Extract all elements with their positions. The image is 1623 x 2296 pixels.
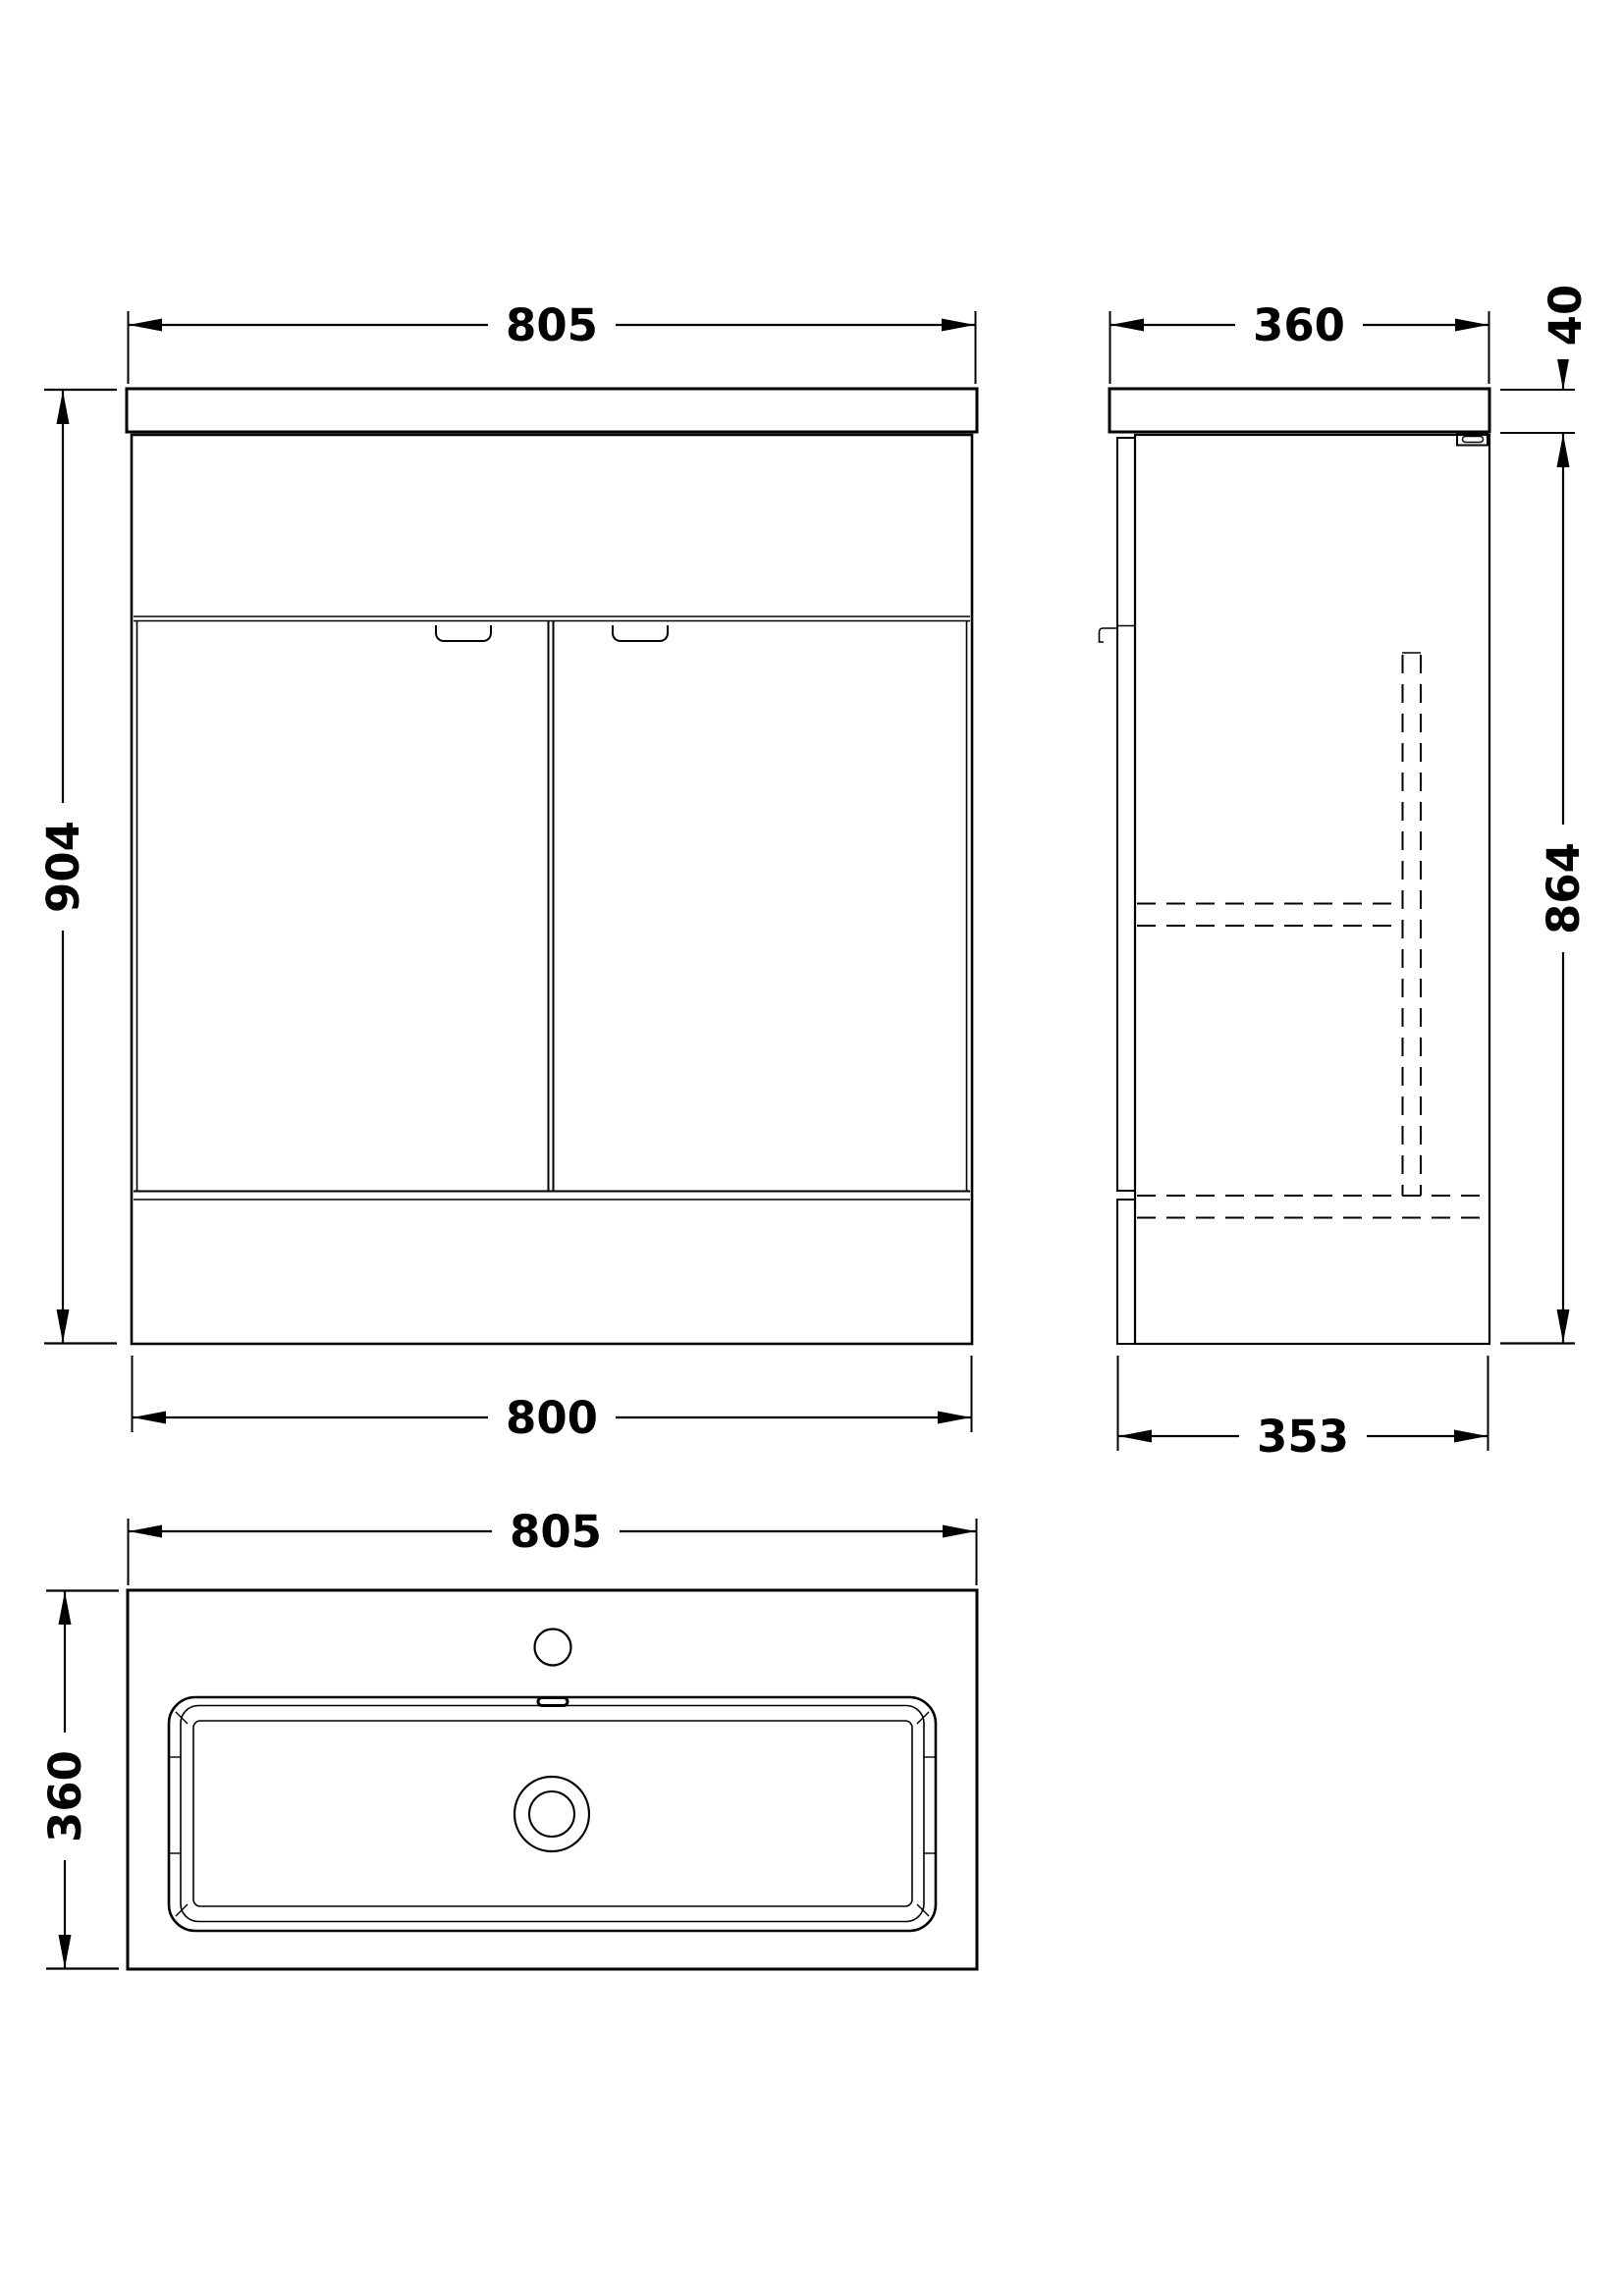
front-cabinet-carcass: [132, 435, 972, 1344]
plan-basin-rim-outer: [169, 1697, 936, 1931]
arrowhead-left: [129, 319, 162, 332]
technical-drawing-canvas: 805 904 800: [0, 0, 1623, 2296]
drawing-page: 805 904 800: [0, 0, 1623, 2296]
rotated-label-group: 360: [39, 1733, 91, 1860]
front-height-label: 904: [37, 821, 89, 913]
plan-basin-corner-tick-br: [917, 1904, 929, 1916]
arrowhead-right: [942, 319, 975, 332]
side-bottom-depth-label: 353: [1257, 1411, 1349, 1463]
side-dim-worktop-thickness: 40: [1500, 271, 1592, 433]
arrowhead-down: [59, 1935, 72, 1968]
front-top-width-label: 805: [506, 299, 598, 351]
arrowhead-down: [57, 1309, 70, 1343]
arrowhead-up: [1557, 434, 1570, 467]
side-door-profile: [1117, 438, 1135, 1191]
rotated-label-group: 40: [1540, 271, 1592, 359]
side-top-depth-label: 360: [1253, 299, 1345, 351]
plan-basin-corner-tick-tl: [176, 1712, 188, 1724]
arrowhead-right: [1455, 319, 1488, 332]
front-dim-top-width: 805: [129, 299, 976, 384]
front-view: 805 904 800: [37, 299, 977, 1444]
front-worktop: [127, 389, 977, 432]
side-cabinet-carcass: [1135, 435, 1489, 1344]
side-dim-bottom-depth: 353: [1118, 1356, 1488, 1463]
arrowhead-left: [129, 1525, 162, 1538]
front-left-door-handle: [436, 625, 491, 641]
arrowhead-right: [938, 1412, 971, 1424]
plan-overflow-slot: [538, 1698, 568, 1706]
plan-tap-hole: [535, 1629, 571, 1666]
arrowhead-up: [57, 391, 70, 424]
plan-dim-depth: 360: [39, 1591, 119, 1969]
front-dim-height: 904: [37, 390, 117, 1344]
side-plinth-profile: [1117, 1200, 1135, 1344]
arrowhead-down: [1557, 1309, 1570, 1343]
front-bottom-width-label: 800: [506, 1392, 598, 1444]
arrowhead-right: [1454, 1430, 1488, 1443]
arrowhead-up: [59, 1591, 72, 1625]
plan-width-label: 805: [510, 1506, 602, 1558]
plan-basin-corner-tick-tr: [917, 1712, 929, 1724]
front-dim-bottom-width: 800: [133, 1356, 972, 1444]
side-worktop: [1109, 389, 1489, 432]
arrowhead-left: [1118, 1430, 1152, 1443]
rotated-label-group: 904: [37, 803, 89, 931]
side-dim-top-depth: 360: [1110, 299, 1489, 384]
arrowhead-right: [943, 1525, 976, 1538]
side-dim-body-height: 864: [1500, 434, 1590, 1344]
plan-worktop-outline: [128, 1590, 977, 1969]
plan-dim-width: 805: [129, 1506, 977, 1585]
side-hinge-slot: [1463, 437, 1484, 443]
front-right-door-handle: [613, 625, 668, 641]
arrowhead-down: [1557, 356, 1570, 390]
arrowhead-left: [1110, 319, 1144, 332]
side-body-height-label: 864: [1538, 842, 1590, 934]
side-worktop-thickness-label: 40: [1540, 285, 1592, 347]
plan-depth-label: 360: [39, 1750, 91, 1842]
arrowhead-left: [133, 1412, 166, 1424]
plan-basin-rim-inner: [181, 1706, 924, 1922]
side-view: 360 40 864: [1100, 271, 1592, 1463]
rotated-label-group: 864: [1538, 825, 1590, 952]
plan-basin-floor-edge: [193, 1721, 912, 1906]
plan-waste-outer: [514, 1777, 589, 1851]
plan-basin-corner-tick-bl: [176, 1904, 188, 1916]
plan-waste-inner: [529, 1791, 574, 1837]
plan-view: 805 360: [39, 1506, 977, 1969]
